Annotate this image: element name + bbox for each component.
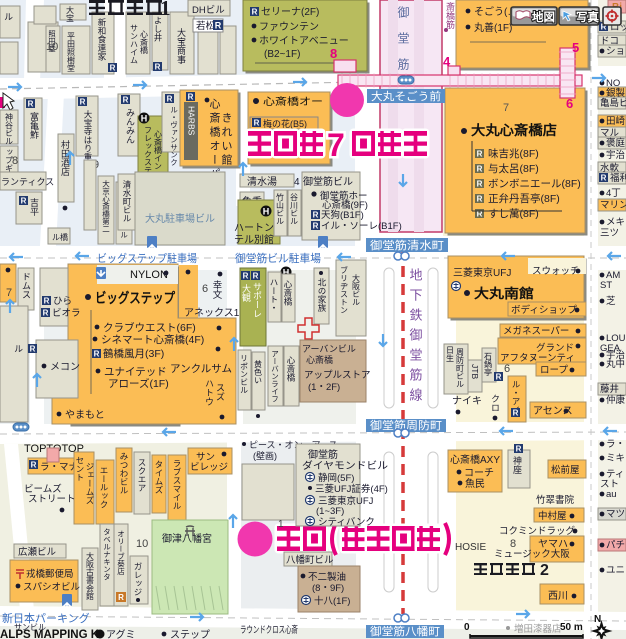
svg-text:リボンビル: リボンビル [240, 354, 249, 394]
svg-text:三菱東京UFJ: 三菱東京UFJ [453, 266, 511, 279]
svg-text:大丸そごう前: 大丸そごう前 [371, 89, 441, 103]
svg-text:4: 4 [294, 177, 300, 188]
svg-text:地図: 地図 [532, 10, 555, 24]
svg-text:御堂筋: 御堂筋 [396, 5, 410, 84]
svg-text:アップルストア: アップルストア [304, 370, 371, 381]
svg-text:スパシオビル: スパシオビル [23, 582, 81, 593]
svg-text:8: 8 [12, 155, 18, 167]
svg-text:0: 0 [464, 622, 470, 633]
svg-text:仲康: 仲康 [606, 394, 626, 406]
svg-text:やまもと: やまもと [65, 409, 105, 421]
svg-text:R: R [243, 272, 249, 281]
svg-text:ラブスマイル: ラブスマイル [172, 459, 182, 510]
svg-text:10: 10 [136, 538, 148, 550]
svg-text:ジェームズ: ジェームズ [85, 462, 95, 505]
svg-text:マリン: マリン [600, 200, 626, 211]
svg-text:サポーレ: サポーレ [252, 282, 262, 318]
svg-text:ラ・マナ: ラ・マナ [40, 462, 78, 473]
svg-text:みんみん: みんみん [125, 108, 135, 144]
svg-text:地下鉄御堂筋線: 地下鉄御堂筋線 [408, 268, 423, 408]
svg-text:メガネスーパー: メガネスーパー [503, 326, 569, 337]
svg-text:ダイヤモンドビル: ダイヤモンドビル [302, 459, 388, 472]
svg-text:R: R [496, 373, 502, 382]
svg-text:6: 6 [566, 96, 573, 111]
svg-text:アネックス1: アネックス1 [184, 307, 240, 319]
svg-text:正弁丹吾亭(8F): 正弁丹吾亭(8F) [488, 192, 560, 205]
svg-text:R: R [123, 96, 129, 105]
svg-text:芝: 芝 [606, 295, 616, 307]
svg-text:亀島ビ: 亀島ビ [600, 97, 626, 109]
svg-text:心斎橋イン: 心斎橋イン [154, 130, 163, 170]
svg-text:R: R [215, 21, 222, 31]
svg-text:セント: セント [75, 456, 85, 482]
svg-text:6: 6 [202, 283, 208, 295]
svg-text:エールック: エールック [99, 466, 109, 509]
svg-text:新和食連家: 新和食連家 [97, 17, 107, 60]
svg-text:1: 1 [160, 0, 171, 20]
svg-text:幸文: 幸文 [211, 280, 223, 300]
svg-text:DHビル: DHビル [192, 5, 225, 16]
svg-text:ランティクス: ランティクス [1, 177, 54, 187]
svg-text:ひら: ひら [53, 296, 72, 307]
svg-text:R: R [477, 150, 483, 159]
svg-text:ハート・: ハート・ [269, 278, 279, 312]
svg-text:(B2~1F): (B2~1F) [264, 49, 300, 60]
svg-text:イル・ソーレ(B1F): イル・ソーレ(B1F) [321, 221, 402, 232]
svg-text:吉平: 吉平 [29, 198, 39, 217]
svg-text:1: 1 [278, 519, 284, 530]
svg-text:神谷ビル: 神谷ビル [5, 112, 14, 145]
svg-text:ユニ: ユニ [606, 565, 625, 576]
svg-text:心斎橋: 心斎橋 [140, 30, 149, 55]
svg-text:福利: 福利 [610, 172, 626, 184]
svg-text:マツ: マツ [606, 509, 625, 520]
svg-text:斎橋筋: 斎橋筋 [445, 1, 455, 30]
svg-text:戎橋郵便局: 戎橋郵便局 [26, 568, 74, 580]
svg-text:竹山ビル: 竹山ビル [276, 192, 285, 225]
svg-text:ハトウ: ハトウ [204, 379, 214, 406]
svg-text:R: R [477, 165, 483, 174]
svg-text:R: R [28, 100, 34, 109]
svg-text:ブリヂストン: ブリヂストン [340, 265, 349, 314]
svg-text:ミキ: ミキ [606, 453, 625, 464]
svg-text:50 m: 50 m [560, 622, 583, 633]
svg-text:丸中: 丸中 [606, 358, 625, 370]
svg-text:石鍋亭: 石鍋亭 [484, 352, 493, 376]
svg-text:パチ: パチ [606, 540, 625, 551]
svg-text:R: R [477, 195, 483, 204]
svg-text:大丸心斎橋店: 大丸心斎橋店 [471, 122, 558, 138]
svg-text:ドムス: ドムス [21, 272, 31, 299]
svg-text:ナイキ: ナイキ [452, 395, 482, 407]
svg-text:ボディショップ: ボディショップ [511, 304, 577, 316]
svg-text:クロ: クロ [490, 394, 500, 412]
svg-text:ラウンドクロス心斎: ラウンドクロス心斎 [240, 624, 298, 636]
svg-text:心斎橋オーパ: 心斎橋オーパ [208, 98, 221, 182]
svg-text:R: R [513, 409, 519, 418]
svg-text:タイムズ: タイムズ [154, 460, 164, 494]
svg-text:R: R [516, 445, 522, 454]
svg-text:みつわビル: みつわビル [119, 452, 129, 495]
svg-text:R: R [94, 350, 100, 359]
svg-text:メキ: メキ [606, 217, 625, 228]
svg-text:心斎橋AXY: 心斎橋AXY [450, 453, 500, 466]
svg-text:スクエア: スクエア [137, 458, 147, 492]
svg-text:スズ: スズ [215, 383, 225, 401]
svg-text:ビッグステップ駐車場: ビッグステップ駐車場 [97, 251, 197, 265]
svg-text:(1~3F): (1~3F) [316, 506, 344, 517]
svg-text:アンクルサム: アンクルサム [170, 363, 232, 375]
svg-text:三ツ: 三ツ [600, 228, 619, 239]
svg-text:清水湯: 清水湯 [247, 175, 277, 188]
svg-text:すし萬(8F): すし萬(8F) [488, 207, 539, 220]
svg-text:周防町ビル: 周防町ビル [456, 348, 465, 388]
svg-text:静岡(5F): 静岡(5F) [318, 472, 354, 484]
svg-text:御堂筋ビル: 御堂筋ビル [303, 175, 353, 188]
svg-text:R: R [31, 461, 37, 470]
svg-text:サンハイム: サンハイム [130, 24, 139, 64]
svg-text:清水町ビル: 清水町ビル [122, 179, 132, 222]
svg-text:10: 10 [46, 41, 58, 53]
svg-text:富亀鮓: 富亀鮓 [29, 111, 39, 140]
svg-text:タベルナキンタ: タベルナキンタ [102, 528, 111, 581]
svg-text:H: H [263, 207, 270, 217]
svg-text:西川: 西川 [548, 591, 568, 602]
svg-text:ファウンテン: ファウンテン [259, 21, 319, 33]
svg-text:4: 4 [443, 54, 451, 69]
svg-text:NYLON: NYLON [130, 269, 168, 281]
svg-text:宇治: 宇治 [606, 149, 625, 161]
svg-text:R: R [477, 180, 483, 189]
svg-text:クラブウエスト(6F): クラブウエスト(6F) [103, 321, 196, 334]
svg-text:心斎橋: 心斎橋 [283, 280, 293, 306]
svg-text:御堂筋: 御堂筋 [308, 448, 338, 461]
svg-text:ストリート: ストリート [28, 494, 76, 505]
svg-text:大宝: 大宝 [66, 5, 75, 22]
svg-text:(壁画): (壁画) [253, 450, 277, 461]
svg-text:松前屋: 松前屋 [551, 464, 580, 476]
svg-text:広瀬ビル: 広瀬ビル [18, 546, 57, 558]
svg-text:北の家族: 北の家族 [317, 278, 327, 313]
svg-text:シネマート心斎橋(4F): シネマート心斎橋(4F) [101, 333, 204, 346]
svg-text:ラ・: ラ・ [606, 439, 625, 450]
svg-text:コーチ: コーチ [464, 467, 494, 479]
svg-text:R: R [188, 93, 194, 102]
svg-text:黄色い: 黄色い [254, 359, 263, 384]
svg-text:ショ: ショ [606, 46, 625, 57]
svg-text:増田漆器店: 増田漆器店 [514, 623, 562, 635]
svg-text:日生: 日生 [446, 346, 455, 362]
svg-text:大阪ビル: 大阪ビル [352, 273, 361, 306]
svg-text:心斎橋: 心斎橋 [286, 356, 296, 382]
svg-text:天狗(B1F): 天狗(B1F) [321, 209, 364, 221]
svg-text:ALPS MAPPING K: ALPS MAPPING K [0, 629, 100, 639]
svg-text:村田酒店: 村田酒店 [60, 139, 70, 177]
svg-text:R: R [253, 272, 259, 281]
svg-text:7: 7 [503, 102, 509, 114]
svg-text:大丸駐車場ビル: 大丸駐車場ビル [145, 212, 215, 225]
svg-text:魚民: 魚民 [465, 477, 485, 490]
svg-text:大京心斎橋第二: 大京心斎橋第二 [101, 179, 110, 233]
svg-text:スウォッチ: スウォッチ [532, 266, 580, 277]
svg-text:(1・2F): (1・2F) [308, 382, 340, 393]
svg-text:田崎: 田崎 [606, 115, 626, 127]
svg-text:R: R [118, 593, 124, 602]
svg-text:8: 8 [330, 46, 337, 61]
svg-text:アグミ: アグミ [106, 628, 136, 639]
svg-text:ル橋: ル橋 [52, 232, 68, 242]
svg-text:N: N [594, 614, 601, 625]
svg-text:(8・9F): (8・9F) [312, 583, 344, 594]
svg-text:ST: ST [600, 280, 612, 291]
svg-text:褒庭: 褒庭 [606, 137, 626, 149]
svg-text:大阪古書会館: 大阪古書会館 [86, 551, 95, 601]
svg-text:ボンボニエール(8F): ボンボニエール(8F) [488, 178, 581, 190]
svg-text:7: 7 [6, 287, 12, 299]
svg-text:HOSIE: HOSIE [455, 542, 486, 553]
svg-text:大観: 大観 [241, 283, 251, 303]
svg-text:ビオラ: ビオラ [52, 308, 81, 319]
svg-text:三菱UFJ証券(4F): 三菱UFJ証券(4F) [315, 483, 388, 495]
svg-text:アーバンライフ: アーバンライフ [270, 350, 279, 403]
svg-text:4丁: 4丁 [606, 188, 621, 199]
svg-text:JTB: JTB [470, 364, 480, 379]
svg-text:6: 6 [504, 363, 510, 375]
svg-text:御堂筋清水町: 御堂筋清水町 [370, 238, 444, 252]
svg-text:ロープ: ロープ [540, 365, 568, 376]
svg-text:心斎橋オー: 心斎橋オー [263, 95, 323, 108]
svg-text:R: R [21, 197, 27, 206]
svg-text:メコン: メコン [50, 362, 80, 373]
svg-text:ル: ル [13, 344, 23, 353]
svg-text:HARBS: HARBS [187, 106, 197, 136]
svg-text:R: R [110, 64, 116, 73]
svg-text:シティバンク: シティバンク [318, 517, 375, 528]
svg-text:不二製油: 不二製油 [308, 571, 346, 583]
svg-text:R: R [80, 98, 86, 107]
svg-text:ル・ヴァンサンク: ル・ヴァンサンク [169, 106, 178, 166]
svg-text:鶴橋風月(3F): 鶴橋風月(3F) [103, 347, 164, 360]
svg-text:大宝商事: 大宝商事 [176, 27, 186, 64]
svg-text:御堂筋八幡町: 御堂筋八幡町 [370, 624, 440, 638]
svg-text:R: R [167, 95, 173, 104]
svg-text:ステップ: ステップ [170, 629, 210, 639]
svg-text:7: 7 [327, 127, 345, 163]
svg-text:2: 2 [540, 562, 549, 579]
svg-text:au: au [606, 489, 617, 500]
svg-text:テル別館: テル別館 [234, 233, 274, 246]
svg-text:アーバンビル: アーバンビル [302, 344, 356, 354]
svg-text:ビレッジ: ビレッジ [190, 462, 228, 473]
svg-text:R: R [30, 345, 36, 354]
svg-text:ユナイテッド: ユナイテッド [104, 366, 167, 378]
svg-text:ビッグステップ: ビッグステップ [95, 290, 176, 306]
svg-text:コクミンドラッグ: コクミンドラッグ [499, 525, 576, 537]
svg-text:心斎橋: 心斎橋 [306, 354, 333, 365]
svg-text:谷川ビル: 谷川ビル [290, 193, 299, 225]
svg-text:御堂筋ビル駐車場: 御堂筋ビル駐車場 [235, 251, 321, 265]
svg-text:丸善(1F): 丸善(1F) [474, 21, 512, 34]
svg-text:アローズ(1F): アローズ(1F) [108, 377, 169, 390]
svg-text:H: H [141, 114, 148, 124]
svg-text:梅の花(B5): 梅の花(B5) [263, 118, 307, 129]
svg-text:竹翠書院: 竹翠書院 [536, 494, 575, 506]
svg-text:R: R [313, 211, 319, 220]
svg-text:R: R [252, 8, 258, 17]
svg-text:平田照樹堂: 平田照樹堂 [67, 32, 76, 72]
svg-text:ル: ル [3, 12, 13, 21]
svg-text:大丸南館: 大丸南館 [474, 286, 534, 301]
svg-text:与太呂(8F): 与太呂(8F) [488, 162, 539, 175]
svg-text:写真: 写真 [576, 10, 599, 24]
svg-text:神座: 神座 [512, 455, 522, 475]
svg-text:R: R [313, 222, 319, 231]
svg-text:オリーブ葵店: オリーブ葵店 [116, 530, 125, 577]
svg-text:味吉兆(8F): 味吉兆(8F) [488, 148, 539, 160]
svg-text:セリーナ(2F): セリーナ(2F) [261, 6, 319, 18]
svg-text:R: R [254, 119, 260, 128]
svg-text:R: R [43, 309, 49, 318]
svg-text:R: R [601, 174, 607, 183]
svg-text:藤井: 藤井 [600, 383, 619, 395]
svg-text:ミュージック大阪: ミュージック大阪 [494, 548, 570, 560]
svg-text:若松: 若松 [196, 20, 216, 32]
svg-text:ガレッジ: ガレッジ [133, 562, 143, 596]
svg-text:八幡町ビル: 八幡町ビル [286, 554, 334, 566]
svg-text:きれい館: きれい館 [220, 112, 233, 168]
svg-text:大宝寺はり重: 大宝寺はり重 [83, 109, 93, 161]
svg-text:R: R [44, 297, 50, 306]
svg-text:中村屋: 中村屋 [538, 510, 567, 522]
svg-text:十八(1F): 十八(1F) [314, 595, 350, 607]
svg-text:5: 5 [572, 40, 579, 55]
svg-text:御津八幡宮: 御津八幡宮 [162, 532, 212, 545]
svg-text:R: R [155, 63, 161, 72]
